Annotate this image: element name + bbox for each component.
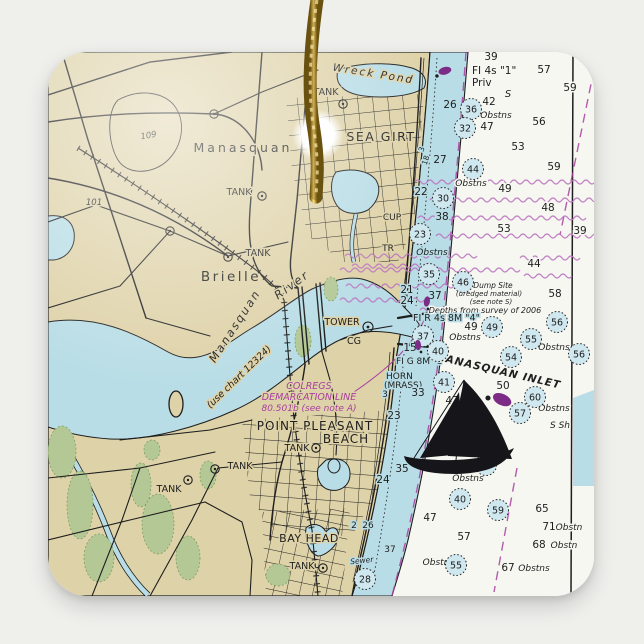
circled-depth-number: 23	[414, 229, 426, 240]
circled-depth-number: 40	[432, 346, 444, 357]
circled-depth-number: 56	[551, 317, 563, 328]
river-island	[169, 391, 183, 417]
place-label: Manasquan	[194, 140, 293, 155]
obstruction-label: Obstns	[518, 564, 550, 574]
place-label: TANK	[289, 561, 316, 572]
depth-number: 39	[573, 225, 586, 237]
circled-depth: 44	[463, 159, 484, 180]
place-label: TANK	[227, 461, 254, 472]
circled-depth-number: 36	[465, 104, 477, 115]
depth-number: 58	[548, 288, 561, 300]
place-label: TANK	[226, 187, 253, 198]
obstruction-label: Obstns	[455, 179, 487, 189]
depth-number: 53	[497, 223, 510, 235]
circled-depth-number: 30	[437, 193, 449, 204]
depth-number: 24	[400, 295, 414, 307]
circle-dot-center	[213, 113, 215, 115]
depth-number: 37	[428, 290, 441, 302]
obstruction-label: Obstns	[416, 248, 448, 258]
depth-number: 68	[532, 539, 545, 551]
depth-number: 49	[464, 321, 477, 333]
circled-depth: 23	[410, 224, 431, 245]
depth-number: 3	[382, 390, 388, 400]
circled-depth-number: 35	[423, 269, 435, 280]
circled-depth-number: 28	[359, 574, 371, 585]
depth-number: 26	[362, 521, 374, 531]
nav-aid-label: (see note S)	[470, 298, 513, 306]
place-label: TR	[381, 244, 394, 254]
circled-depth-number: 44	[467, 164, 479, 175]
circled-depth: 49	[482, 317, 503, 338]
circled-depth: 36	[461, 99, 482, 120]
depth-number: 15	[403, 342, 416, 354]
obstruction-label: Obstn	[551, 541, 578, 551]
depth-number: 24	[376, 474, 390, 486]
product-photo: ManasquanSEA GIRTBriellePOINT PLEASANTBE…	[0, 0, 644, 644]
circled-depth: 56	[569, 344, 590, 365]
circle-dot-center	[315, 447, 317, 449]
depth-number: 33	[411, 387, 424, 399]
obstruction-label: Obstns	[452, 474, 484, 484]
circle-dot-center	[227, 256, 229, 258]
circled-depth: 57	[510, 403, 531, 424]
depth-number: 49	[498, 183, 511, 195]
place-label: TANK	[245, 248, 272, 259]
circled-depth: 28	[355, 569, 376, 590]
circled-depth-number: 49	[486, 322, 498, 333]
obstruction-label: Obstn	[556, 523, 583, 533]
nav-aid-label: S	[505, 89, 512, 100]
obstruction-label: Obstns	[480, 111, 512, 121]
place-label: Brielle	[201, 269, 261, 285]
place-label: 101	[86, 198, 102, 208]
circled-depth-number: 55	[525, 334, 537, 345]
depth-number: 59	[547, 161, 560, 173]
circled-depth: 32	[455, 118, 476, 139]
place-label: TOWER	[323, 317, 360, 328]
place-label: TANK	[313, 87, 340, 98]
circled-depth-number: 57	[514, 408, 526, 419]
depth-number: 67	[501, 562, 514, 574]
depth-number: 59	[563, 82, 576, 94]
depth-number: 47	[423, 512, 436, 524]
circled-depth-number: 41	[438, 377, 450, 388]
nav-aid-label: Priv	[472, 77, 492, 89]
stockton-lake	[332, 170, 379, 213]
place-label: TANK	[284, 443, 311, 454]
depth-number: 38	[435, 211, 448, 223]
circled-depth: 54	[501, 347, 522, 368]
circled-depth: 41	[434, 372, 455, 393]
circled-depth-number: 32	[459, 123, 471, 134]
place-label: CUP	[383, 213, 402, 223]
nautical-chart: ManasquanSEA GIRTBriellePOINT PLEASANTBE…	[48, 52, 594, 596]
depth-number: 27	[433, 154, 446, 166]
circled-depth: 60	[525, 387, 546, 408]
depth-number: 23	[387, 410, 400, 422]
obstruction-label: Obstn	[423, 558, 450, 568]
circled-depth-number: 60	[529, 392, 541, 403]
depth-number: 35	[395, 463, 408, 475]
hanger-hole	[292, 109, 344, 161]
circle-dot-center	[322, 567, 324, 569]
obstruction-label: Obstns	[538, 404, 570, 414]
colregs-note-label: 80.501b (see note A)	[261, 404, 356, 414]
depth-number: 57	[457, 531, 470, 543]
circled-depth: 30	[433, 188, 454, 209]
tower-circle-center	[367, 326, 370, 329]
depth-number: 57	[537, 64, 550, 76]
place-label: SEA GIRT	[346, 129, 415, 144]
depth-number: 71	[542, 521, 555, 533]
depth-number: 53	[511, 141, 524, 153]
obstruction-label: Obstns	[449, 333, 481, 343]
circled-depth: 40	[428, 341, 449, 362]
circled-depth-number: 59	[492, 505, 504, 516]
circled-depth: 56	[547, 312, 568, 333]
circle-dot-center	[169, 230, 171, 232]
depth-number: 65	[535, 503, 548, 515]
circle-dot-center	[342, 103, 344, 105]
circled-depth-number: 40	[454, 494, 466, 505]
depth-number: 56	[532, 116, 546, 128]
circled-depth: 35	[419, 264, 440, 285]
circled-depth: 55	[446, 555, 467, 576]
depth-number: 48	[541, 202, 554, 214]
colregs-note-label: COLREGS	[286, 381, 331, 392]
depth-number: 50	[496, 380, 509, 392]
ceramic-ornament: ManasquanSEA GIRTBriellePOINT PLEASANTBE…	[48, 52, 594, 596]
place-label: BEACH	[323, 432, 369, 446]
nav-aid-label: FI 4s "1"	[472, 65, 516, 77]
depth-number: 2	[351, 521, 357, 531]
circled-depth: 59	[488, 500, 509, 521]
circled-depth: 40	[450, 489, 471, 510]
circled-depth-number: 54	[505, 352, 517, 363]
circled-depth: 55	[521, 329, 542, 350]
nav-aid-label: Dump Site	[473, 281, 513, 290]
colregs-note-label: DEMARCATION LINE	[262, 392, 356, 403]
circled-depth-number: 55	[450, 560, 462, 571]
depth-number: 47	[480, 121, 493, 133]
circle-dot-center	[214, 468, 216, 470]
circled-depth-number: 46	[457, 277, 469, 288]
circle-dot-center	[261, 195, 263, 197]
obstruction-label: Obstns	[538, 343, 570, 353]
depth-number: 44	[527, 258, 541, 270]
depth-number: 22	[414, 186, 427, 198]
place-label: CG	[347, 336, 361, 347]
place-label: TANK	[156, 484, 183, 495]
place-label: BAY HEAD	[279, 532, 339, 545]
depth-number: 42	[482, 96, 495, 108]
depth-number: 26	[443, 99, 457, 111]
depth-number: 39	[484, 52, 497, 63]
depth-number: 37	[384, 545, 395, 555]
circled-depth: 46	[453, 272, 474, 293]
circled-depth-number: 56	[573, 349, 585, 360]
place-label: POINT PLEASANT	[257, 419, 373, 433]
circle-dot-center	[187, 479, 189, 481]
nav-aid-label: S Sh	[550, 421, 570, 431]
